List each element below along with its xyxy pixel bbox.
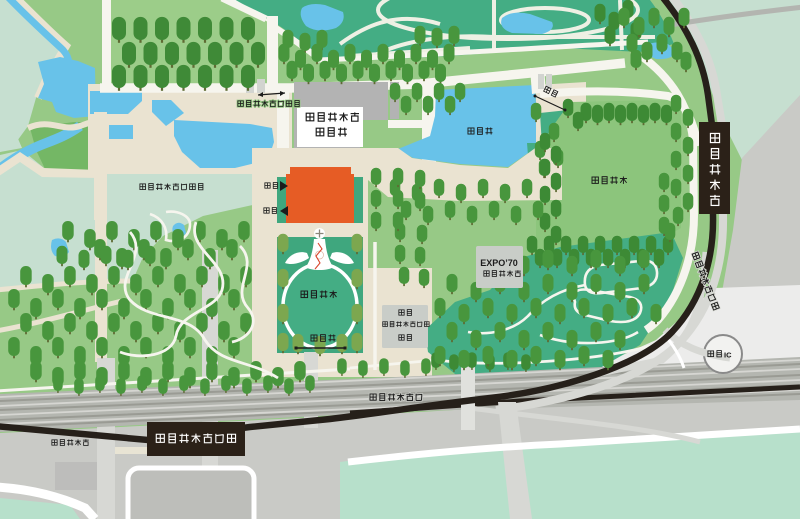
- svg-text:IC: IC: [724, 351, 732, 360]
- svg-text:EXPO’70: EXPO’70: [480, 258, 518, 268]
